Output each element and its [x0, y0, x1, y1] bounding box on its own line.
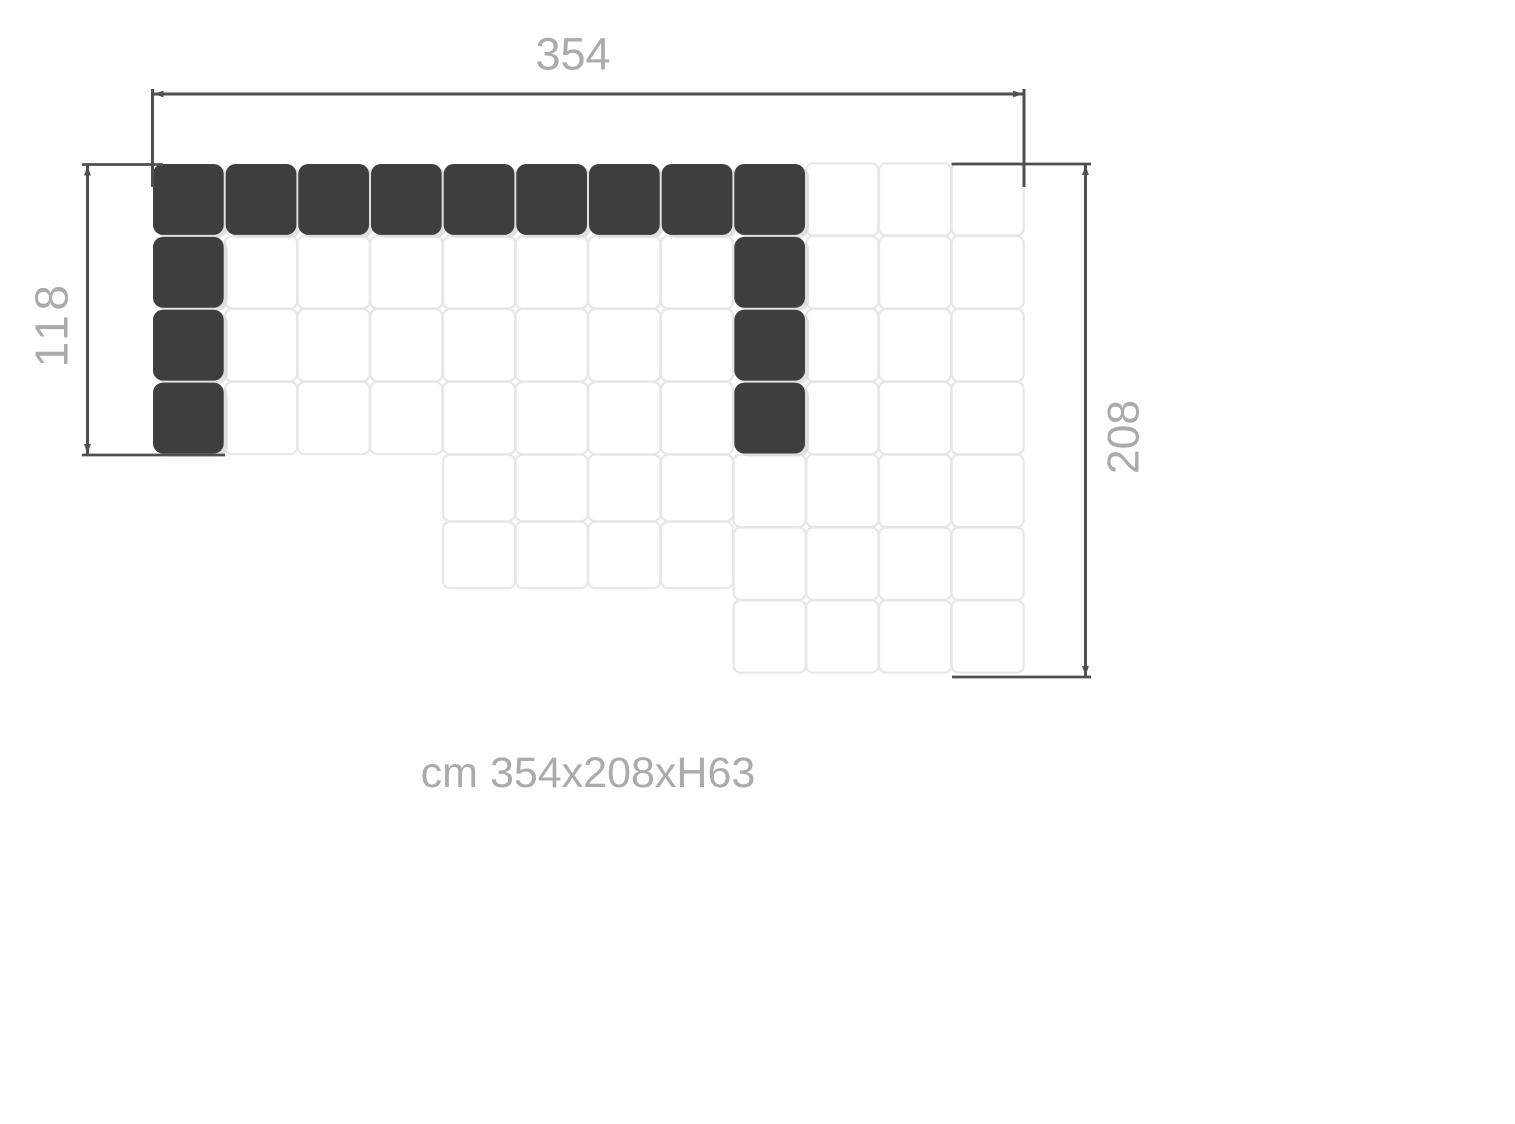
svg-text:118: 118 — [26, 281, 78, 368]
svg-text:354: 354 — [535, 29, 610, 80]
svg-text:cm 354x208xH63: cm 354x208xH63 — [421, 749, 756, 797]
svg-text:208: 208 — [1099, 400, 1148, 474]
